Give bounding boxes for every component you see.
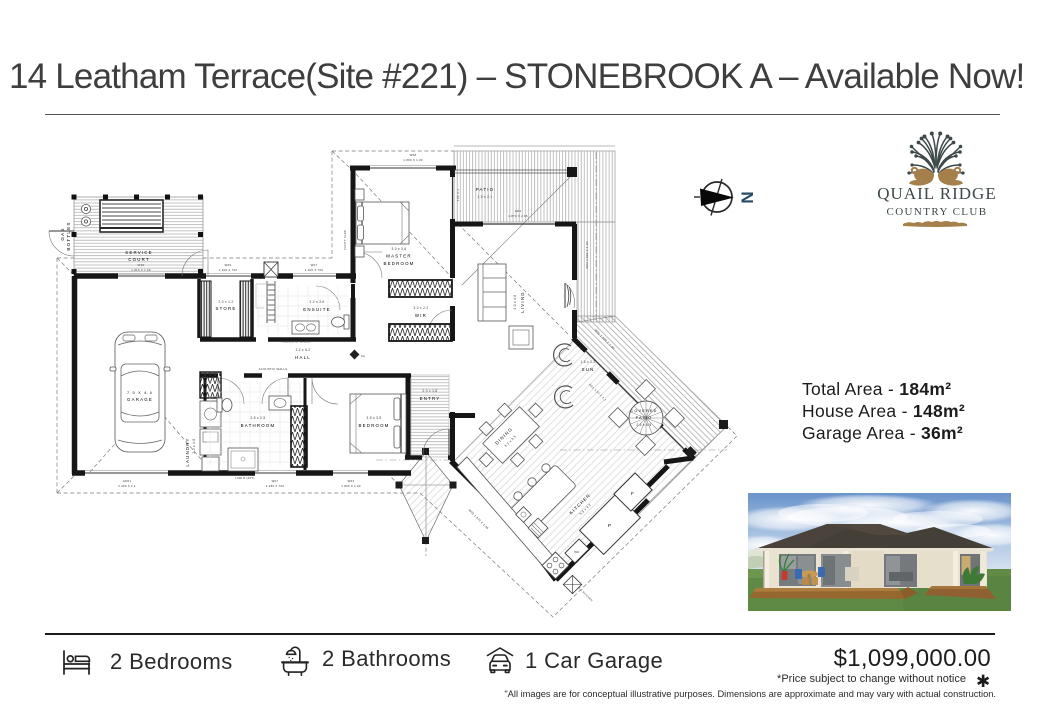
- svg-text:SUN: SUN: [582, 367, 595, 372]
- svg-text:SA: SA: [361, 354, 365, 358]
- svg-text:2.280 X 700: 2.280 X 700: [266, 484, 285, 488]
- svg-text:1.810 X 1.00: 1.810 X 1.00: [131, 268, 151, 272]
- svg-text:3.5 x 2.5: 3.5 x 2.5: [251, 416, 266, 420]
- svg-text:5.2 KITCHEN: 5.2 KITCHEN: [578, 586, 594, 602]
- svg-text:MASTER: MASTER: [386, 254, 412, 259]
- svg-text:1UP 2.1: 1UP 2.1: [456, 189, 460, 201]
- svg-text:3.0 x 3.6: 3.0 x 3.6: [392, 247, 407, 251]
- svg-text:GD01: GD01: [123, 479, 132, 483]
- svg-text:ENTRY: ENTRY: [420, 396, 441, 401]
- svg-text:2.0 x 1.8: 2.0 x 1.8: [423, 389, 438, 393]
- svg-text:3.0 x 2.2: 3.0 x 2.2: [414, 306, 429, 310]
- svg-text:W09: W09: [225, 263, 232, 267]
- svg-text:WD: WD: [574, 550, 579, 554]
- svg-text:2.0 x 3.6: 2.0 x 3.6: [310, 300, 325, 304]
- svg-text:ENSUITE: ENSUITE: [303, 307, 330, 312]
- svg-text:W05 1.870 X 1.06: W05 1.870 X 1.06: [468, 508, 490, 530]
- svg-text:W10: W10: [138, 263, 145, 267]
- svg-text:W07: W07: [272, 479, 279, 483]
- svg-text:LINE B (APT): LINE B (APT): [235, 476, 254, 480]
- svg-text:1.8 x 1.2: 1.8 x 1.2: [581, 360, 596, 364]
- svg-text:1.800 X 1.00: 1.800 X 1.00: [403, 158, 423, 162]
- svg-text:F: F: [631, 491, 635, 496]
- svg-text:GARAGE: GARAGE: [127, 397, 153, 402]
- svg-text:W02 1.800 X 1.00: W02 1.800 X 1.00: [585, 241, 589, 268]
- svg-text:COVERED: COVERED: [630, 409, 657, 413]
- svg-text:2.0 x 1.2: 2.0 x 1.2: [219, 300, 234, 304]
- svg-text:BEDROOM: BEDROOM: [358, 423, 389, 428]
- svg-text:2.0 x 1.6: 2.0 x 1.6: [192, 439, 196, 454]
- svg-text:W03: W03: [348, 479, 355, 483]
- svg-text:P: P: [608, 523, 612, 528]
- svg-text:1.9 x 2.1: 1.9 x 2.1: [478, 195, 493, 199]
- svg-text:BOTTLES: BOTTLES: [66, 221, 71, 250]
- svg-text:2.4 x 6.5: 2.4 x 6.5: [637, 423, 652, 427]
- svg-text:3.5 x 3.5: 3.5 x 3.5: [367, 416, 382, 420]
- svg-text:WIR: WIR: [415, 313, 427, 318]
- svg-text:2.400 X 2.1: 2.400 X 2.1: [118, 484, 136, 488]
- svg-text:BEDROOM: BEDROOM: [383, 261, 414, 266]
- svg-text:CAVITY SLDR: CAVITY SLDR: [343, 230, 347, 250]
- svg-text:LAUNDRY: LAUNDRY: [185, 437, 190, 466]
- svg-text:BATHROOM: BATHROOM: [241, 423, 276, 428]
- svg-text:1.800 X 1.00: 1.800 X 1.00: [341, 484, 361, 488]
- svg-text:STORE: STORE: [215, 306, 236, 311]
- svg-text:QUAIL RIDGE: QUAIL RIDGE: [877, 184, 996, 203]
- svg-text:W08: W08: [410, 153, 417, 157]
- svg-text:1.200 X 700: 1.200 X 700: [219, 268, 238, 272]
- svg-text:COUNTRY CLUB: COUNTRY CLUB: [886, 206, 987, 218]
- svg-text:HALL: HALL: [295, 355, 311, 360]
- svg-text:GAS: GAS: [60, 227, 65, 240]
- svg-text:4.0 x 4.6: 4.0 x 4.6: [513, 295, 517, 310]
- svg-text:PATIO: PATIO: [636, 416, 653, 420]
- svg-text:1.870 X 2.06: 1.870 X 2.06: [508, 214, 528, 218]
- svg-text:N: N: [738, 191, 757, 203]
- svg-text:ACOUSTIC WALLS: ACOUSTIC WALLS: [259, 367, 288, 371]
- svg-text:PATIO: PATIO: [476, 187, 495, 192]
- svg-text:1.2 x 6.2: 1.2 x 6.2: [296, 348, 311, 352]
- svg-text:SERVICE: SERVICE: [125, 250, 153, 255]
- svg-text:1.200 X 700: 1.200 X 700: [305, 268, 324, 272]
- svg-text:W07: W07: [311, 263, 318, 267]
- svg-text:COURT: COURT: [128, 257, 150, 262]
- svg-text:HD3: HD3: [515, 209, 522, 213]
- svg-text:7.0 X 4.4: 7.0 X 4.4: [127, 391, 153, 395]
- svg-text:ACOUSTIC WALLS: ACOUSTIC WALLS: [282, 340, 311, 344]
- svg-text:LIVING: LIVING: [520, 291, 525, 313]
